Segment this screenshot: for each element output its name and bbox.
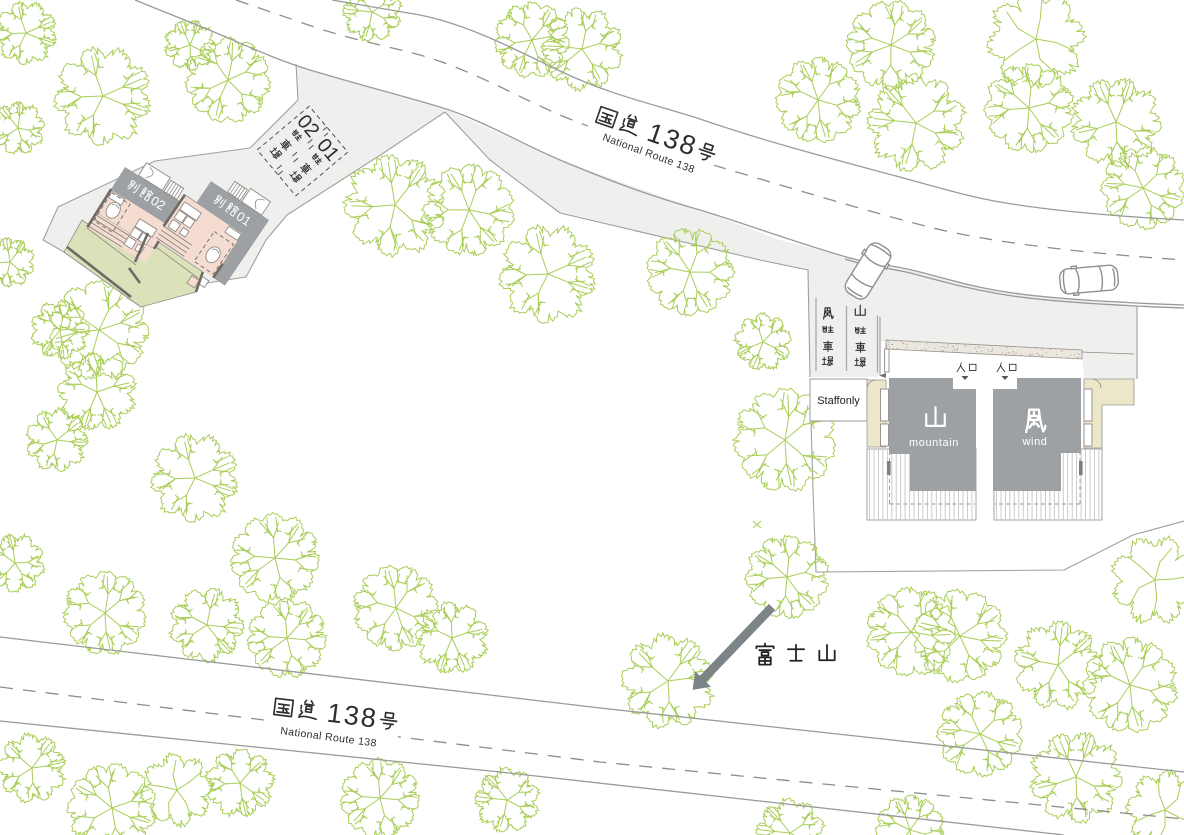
- svg-text:138: 138: [325, 698, 379, 734]
- svg-text:Staffonly: Staffonly: [817, 395, 860, 407]
- svg-text:wind: wind: [1021, 436, 1047, 448]
- svg-text:mountain: mountain: [909, 437, 959, 449]
